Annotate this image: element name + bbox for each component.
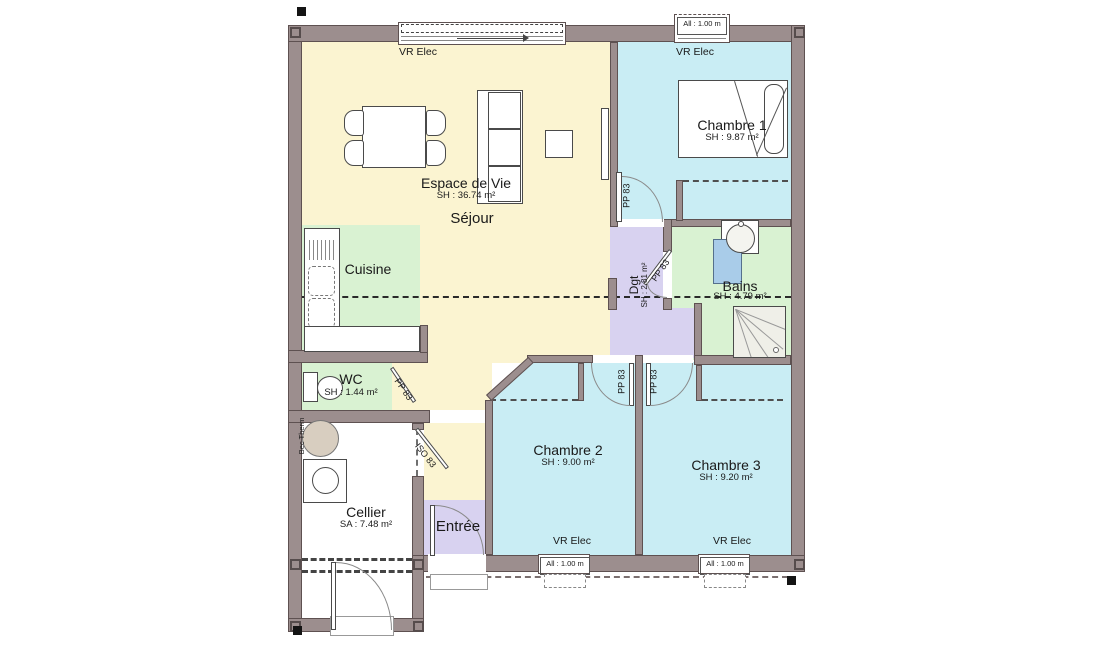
wall-chambre2-top: [527, 355, 593, 363]
floor-plan: All : 1.00 m All : 1.00 m All : 1.00 m: [0, 0, 1100, 650]
window-sill-box: All : 1.00 m: [677, 17, 727, 35]
label-pp83-chambre2: PP 83: [617, 360, 626, 404]
corner-post: [794, 27, 805, 38]
wall-chambre2-closet-stub: [578, 363, 584, 401]
window-chambre1: All : 1.00 m: [674, 14, 730, 43]
chair: [426, 140, 446, 166]
window-chambre2: All : 1.00 m: [538, 554, 590, 574]
sideboard: [601, 108, 609, 180]
window-sill-box: All : 1.00 m: [700, 557, 750, 575]
label-cellier-area: SA : 7.48 m²: [321, 520, 411, 530]
washbasin-tap: [738, 221, 744, 227]
kitchen-sink: [308, 298, 335, 328]
shower: [733, 306, 786, 358]
survey-marker: [787, 576, 796, 585]
side-table: [545, 130, 573, 158]
washbasin-bowl: [726, 224, 755, 253]
chair: [344, 110, 364, 136]
shower-drain: [773, 347, 779, 353]
label-sejour: Séjour: [412, 211, 532, 227]
label-vr-elec-chambre1: VR Elec: [655, 47, 735, 58]
label-vr-elec-chambre2: VR Elec: [532, 536, 612, 547]
label-espace-de-vie-area: SH : 36.74 m²: [401, 191, 531, 201]
chair: [344, 140, 364, 166]
label-chambre1: Chambre 1: [667, 118, 797, 133]
label-chambre2-area: SH : 9.00 m²: [503, 458, 633, 468]
label-chambre3-area: SH : 9.20 m²: [661, 473, 791, 483]
front-door-opening: [428, 554, 486, 574]
chambre2-closet-line: [490, 399, 578, 401]
survey-marker: [293, 626, 302, 635]
wall-bains-l: [694, 303, 702, 360]
label-cellier: Cellier: [321, 505, 411, 520]
corner-post: [413, 621, 424, 632]
kitchen-drainer: [309, 240, 335, 260]
front-door-step: [430, 574, 488, 590]
corner-post: [290, 27, 301, 38]
wall-kitchen-stub: [420, 325, 428, 353]
kitchen-counter-bottom: [304, 326, 420, 352]
corner-post: [794, 559, 805, 570]
label-bains-area: SH : 4.79 m²: [677, 292, 803, 302]
slide-arrow: [457, 38, 523, 39]
wall-dgt-bains-b: [663, 298, 672, 310]
corner-post: [290, 559, 301, 570]
cellier-overhang-line-1: [302, 558, 412, 561]
wall-dgt-living-stub: [608, 278, 617, 310]
slide-arrow-head: [523, 34, 529, 42]
window-rail: [401, 36, 563, 37]
chambre1-closet-line: [683, 180, 788, 182]
wall-chambre1-closet-stub: [676, 180, 683, 221]
wall-left: [288, 25, 302, 632]
wall-cellier-right-low: [412, 476, 424, 556]
window-rail: [678, 38, 726, 39]
label-wc: WC: [329, 372, 373, 387]
chambre3-closet-line: [702, 399, 783, 401]
label-espace-de-vie: Espace de Vie: [401, 176, 531, 191]
chair: [426, 110, 446, 136]
label-wc-area: SH : 1.44 m²: [313, 388, 389, 398]
label-chambre3: Chambre 3: [661, 458, 791, 473]
label-bec-therm: Bec Therm: [298, 414, 306, 458]
label-vr-elec-chambre3: VR Elec: [692, 536, 772, 547]
bay-window-living: [398, 22, 566, 45]
dining-table: [362, 106, 426, 168]
sofa-cushion: [488, 92, 521, 129]
label-pp83-chambre1: PP 83: [622, 174, 631, 218]
shutter-box: [401, 24, 563, 33]
window-sill-box: All : 1.00 m: [540, 557, 590, 575]
wall-party-ch2-ch3: [635, 355, 643, 555]
corner-post: [413, 559, 424, 570]
window-chambre2-tail: [544, 574, 586, 588]
washing-machine-drum: [312, 467, 339, 494]
label-entree: Entrée: [426, 519, 490, 535]
wall-dgt-bains-a: [663, 219, 672, 252]
window-chambre3: All : 1.00 m: [698, 554, 750, 574]
label-chambre1-area: SH : 9.87 m²: [667, 133, 797, 143]
label-dgt-name: Dgt: [628, 240, 641, 330]
sofa-cushion: [488, 129, 521, 166]
wall-chambre3-closet-stub: [696, 365, 702, 401]
label-pp83-chambre3: PP 83: [649, 360, 658, 404]
label-cuisine: Cuisine: [308, 262, 428, 277]
water-heater: [302, 420, 339, 457]
window-rail: [401, 40, 563, 41]
label-vr-elec-living: VR Elec: [378, 47, 458, 58]
threshold-chambre2: [593, 355, 635, 363]
window-chambre3-tail: [704, 574, 746, 588]
survey-marker: [297, 7, 306, 16]
wall-wc-bottom: [288, 410, 430, 423]
label-chambre2: Chambre 2: [503, 443, 633, 458]
